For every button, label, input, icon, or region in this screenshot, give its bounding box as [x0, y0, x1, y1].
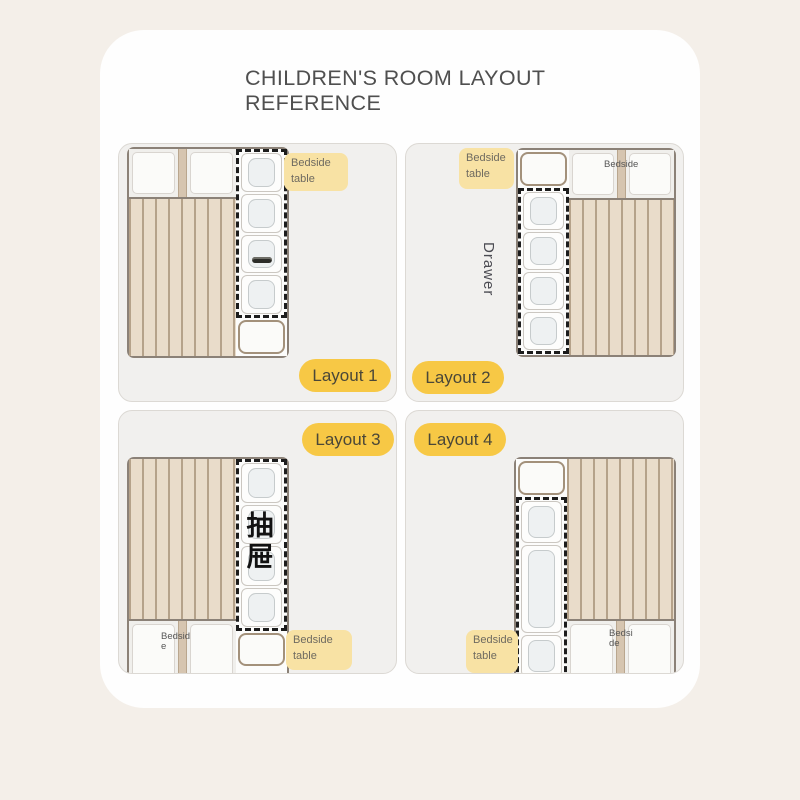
drawer-handle: [252, 257, 272, 263]
tag-line1: Bedside: [466, 151, 514, 167]
headboard-divider: [178, 149, 187, 197]
page-title-line2: REFERENCE: [245, 91, 575, 116]
pillow-row: [569, 150, 674, 198]
drawer-front: [528, 640, 555, 672]
tag-line1: Bedside: [293, 633, 352, 649]
layout2-panel: Bedside Drawer Bedside table Layout 2: [405, 143, 684, 402]
drawer-cell: [523, 192, 564, 230]
bedside-table-tag: Bedside table: [286, 630, 352, 670]
drawer-front: [248, 593, 275, 623]
mattress-slats: [569, 198, 674, 355]
tag-line1: Bedside: [291, 156, 348, 172]
page-title: CHILDREN'S ROOM LAYOUT REFERENCE: [245, 66, 575, 117]
drawer-cell: [241, 463, 282, 503]
layout4-panel: Bedside Bedside table Layout 4: [405, 410, 684, 674]
drawer-zone-outline: [516, 497, 567, 674]
bed-top-view: [516, 148, 676, 357]
bed-top-view: [127, 147, 289, 358]
bedside-table: [238, 633, 285, 666]
tag-line2: table: [291, 172, 348, 188]
layout3-badge: Layout 3: [302, 423, 394, 456]
bedside-caption: Bedside: [161, 632, 193, 653]
drawer-front: [528, 550, 555, 629]
bedside-table: [518, 461, 565, 495]
drawer-cell: [521, 635, 562, 674]
drawer-front: [248, 468, 275, 498]
drawer-cell: [521, 545, 562, 634]
drawer-front: [530, 197, 557, 225]
bedside-caption: Bedside: [609, 629, 637, 650]
drawer-cell: [523, 232, 564, 270]
headboard-divider: [617, 150, 626, 198]
mattress-slats: [129, 459, 236, 621]
drawer-front: [530, 277, 557, 305]
pillow: [190, 152, 233, 194]
drawer-column: [236, 149, 287, 356]
drawer-front: [248, 240, 275, 269]
pillow: [190, 624, 233, 674]
bedside-table: [238, 320, 285, 354]
mattress-slats: [567, 459, 674, 621]
layout2-badge: Layout 2: [412, 361, 504, 394]
drawer-cell: [523, 272, 564, 310]
tag-line2: table: [466, 167, 514, 183]
page-title-line1: CHILDREN'S ROOM LAYOUT: [245, 66, 575, 91]
bedside-table-tag: Bedside table: [284, 153, 348, 191]
drawer-cell: [241, 588, 282, 628]
drawer-zone-outline: [236, 149, 287, 318]
drawer-cell: [241, 235, 282, 274]
bedside-table-tag: Bedside table: [459, 148, 514, 189]
layout1-badge: Layout 1: [299, 359, 391, 392]
tag-line1: Bedside: [473, 633, 518, 649]
drawer-cell: [241, 153, 282, 192]
pillow-row: [129, 149, 236, 197]
layout4-badge: Layout 4: [414, 423, 506, 456]
mattress-slats: [129, 197, 236, 356]
bedside-table-tag: Bedside table: [466, 630, 518, 673]
pillow: [132, 152, 175, 194]
drawer-label-zh: 抽屉: [244, 511, 276, 573]
bedside-table: [520, 152, 567, 186]
tag-line2: table: [293, 649, 352, 665]
bedside-caption: Bedside: [604, 160, 648, 170]
bed-top-view: [514, 457, 676, 674]
drawer-label: Drawer: [480, 242, 497, 296]
drawer-cell: [241, 275, 282, 314]
drawer-cell: [523, 312, 564, 350]
drawer-zone-outline: [518, 188, 569, 354]
layout3-panel: 抽屉 Bedside Bedside table Layout 3: [118, 410, 397, 674]
drawer-front: [248, 199, 275, 228]
bed-main: [569, 150, 674, 355]
reference-card: CHILDREN'S ROOM LAYOUT REFERENCE: [100, 30, 700, 708]
drawer-front: [528, 506, 555, 538]
drawer-front: [530, 237, 557, 265]
layout1-panel: Bedside table Layout 1: [118, 143, 397, 402]
drawer-front: [248, 280, 275, 309]
drawer-front: [530, 317, 557, 345]
pillow: [570, 624, 613, 674]
drawer-front: [248, 158, 275, 187]
tag-line2: table: [473, 649, 518, 665]
bed-main: [129, 149, 236, 356]
drawer-cell: [521, 501, 562, 543]
drawer-cell: [241, 194, 282, 233]
drawer-column: [516, 459, 567, 674]
drawer-column: [518, 150, 569, 355]
